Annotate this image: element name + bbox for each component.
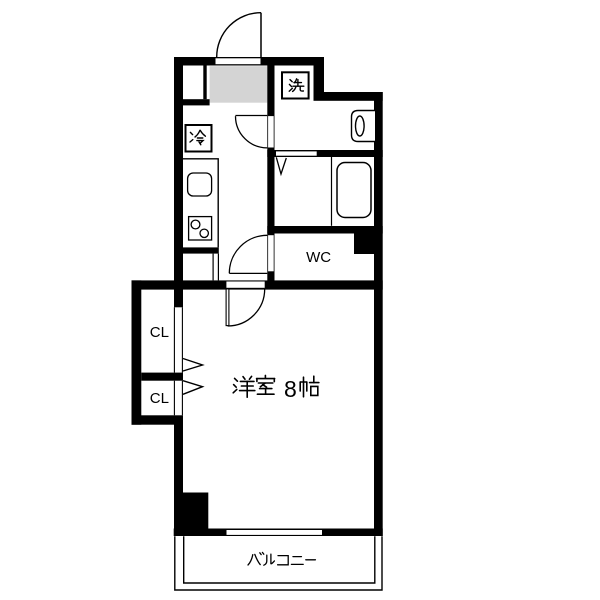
- svg-text:CL: CL: [150, 390, 169, 407]
- svg-text:8: 8: [284, 376, 297, 402]
- svg-text:CL: CL: [150, 324, 169, 341]
- svg-text:WC: WC: [306, 249, 331, 266]
